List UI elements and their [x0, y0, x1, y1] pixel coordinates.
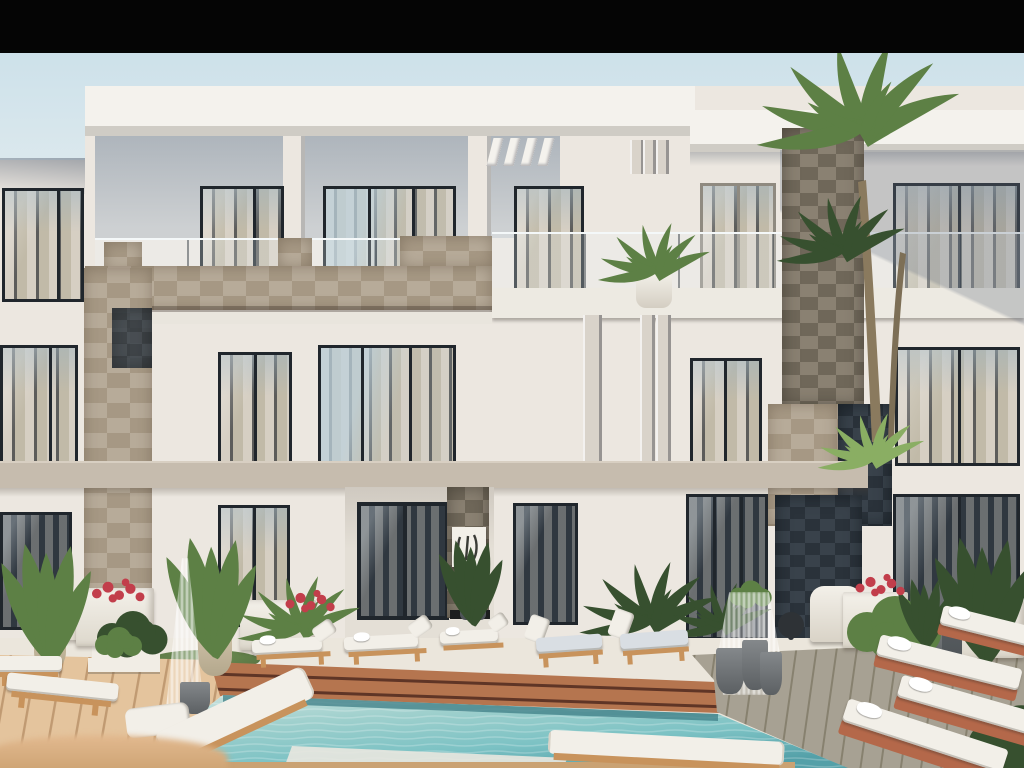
railing-stone-pedestal-3 [400, 236, 492, 268]
cascade-vase-3 [760, 652, 782, 695]
sun-lounger [439, 614, 509, 661]
roof-column-2 [468, 136, 491, 240]
window-2f-2 [318, 345, 456, 468]
window-2f-3 [690, 358, 762, 466]
terrace-step-3 [88, 658, 160, 672]
facade-fin [656, 140, 669, 174]
floor-slab-band [0, 461, 868, 488]
window-2f-leftwing [0, 345, 78, 468]
cascade-vase-1 [716, 648, 744, 694]
window-3f-leftwing [2, 188, 84, 302]
window-2f-1 [218, 352, 292, 466]
red-flowers-3 [850, 560, 908, 604]
roof-soffit-left [85, 126, 695, 136]
facade-fin [643, 140, 656, 174]
facade-fin [630, 140, 644, 174]
sun-lounger [610, 603, 692, 672]
facade-fin-2f [656, 315, 671, 480]
balcony-palm-plant [600, 178, 710, 308]
red-flowers-2 [278, 578, 342, 620]
sun-lounger [526, 609, 606, 674]
sun-lounger [343, 618, 433, 669]
red-flowers-1 [86, 566, 152, 610]
resort-render-scene [0, 0, 1024, 768]
palm-trunk-2 [888, 252, 906, 442]
letterbox-bar [0, 0, 1024, 53]
palm-tree-large [760, 42, 1010, 482]
stone-pier-left-dark-patch [112, 308, 152, 368]
side-table [778, 612, 804, 638]
facade-fin-2f [583, 315, 602, 480]
railing-stone-pedestal-2 [278, 238, 312, 268]
roof-column-1 [283, 136, 305, 240]
facade-fin-2f [640, 315, 655, 480]
